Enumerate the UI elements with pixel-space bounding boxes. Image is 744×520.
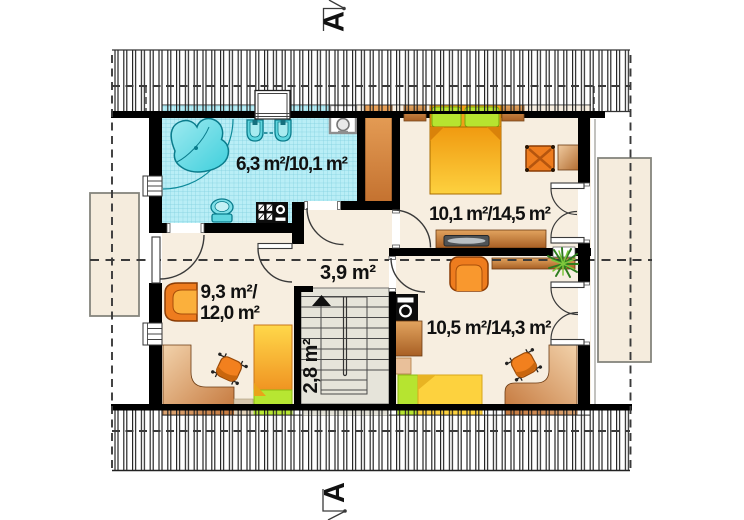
svg-text:3,9 m²: 3,9 m² <box>320 262 376 284</box>
svg-text:10,1 m²/14,5 m²: 10,1 m²/14,5 m² <box>429 204 551 225</box>
svg-text:2,8 m²: 2,8 m² <box>300 338 322 393</box>
svg-text:A: A <box>319 11 351 32</box>
svg-text:10,5 m²/14,3 m²: 10,5 m²/14,3 m² <box>427 318 552 339</box>
svg-text:6,3 m²/10,1 m²: 6,3 m²/10,1 m² <box>236 154 348 175</box>
svg-text:9,3 m²/: 9,3 m²/ <box>201 282 259 303</box>
svg-text:A: A <box>319 482 351 503</box>
svg-text:12,0 m²: 12,0 m² <box>200 303 260 324</box>
